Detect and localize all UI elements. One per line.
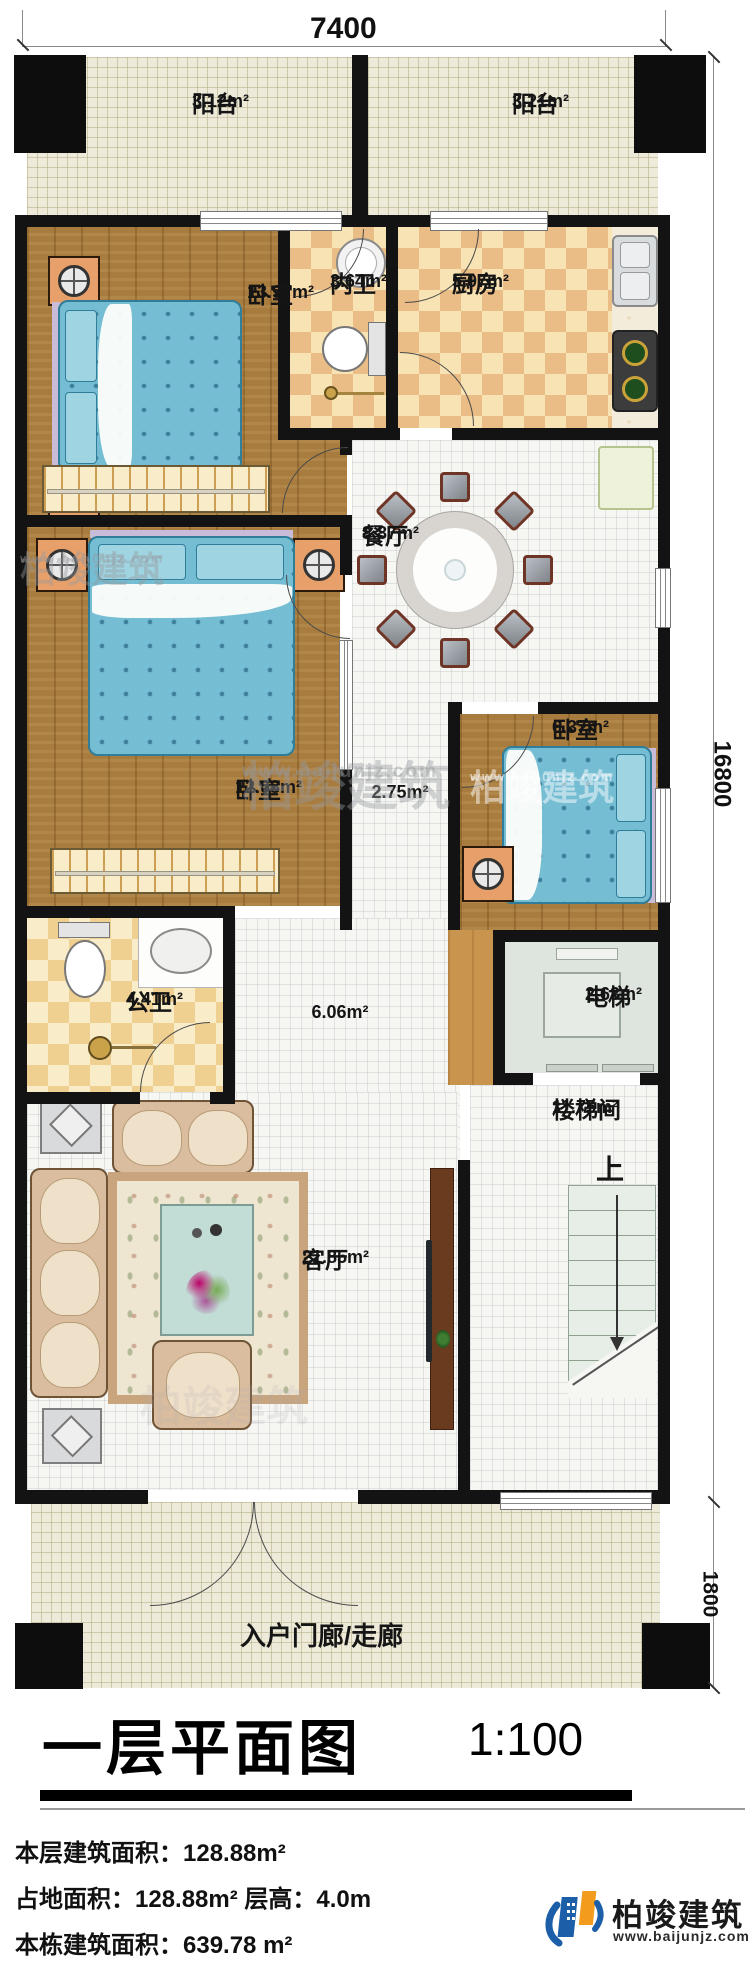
balcony-right-floor xyxy=(368,57,658,215)
dim-tick xyxy=(708,51,721,64)
pillow xyxy=(196,544,284,580)
dining-chair xyxy=(357,555,387,585)
wall xyxy=(15,1490,148,1504)
dining-chair xyxy=(523,555,553,585)
side-table xyxy=(42,1408,102,1464)
window xyxy=(339,640,353,770)
sofa-three-seat xyxy=(30,1168,108,1398)
pillow xyxy=(616,754,646,822)
title-underline-thin xyxy=(40,1808,745,1810)
wall xyxy=(452,428,670,440)
side-table xyxy=(40,1096,102,1154)
stair-arrow-head xyxy=(610,1337,624,1351)
coffee-table xyxy=(160,1204,254,1336)
wall xyxy=(493,930,505,1085)
shower-arm xyxy=(112,1046,156,1049)
info-floor-area: 本层建筑面积：128.88m² xyxy=(15,1833,286,1868)
column xyxy=(14,55,86,153)
column xyxy=(15,1623,83,1689)
sofa-two-seat xyxy=(112,1100,254,1174)
title-underline xyxy=(40,1790,632,1801)
info-building-area: 本栋建筑面积：639.78 m² xyxy=(15,1925,292,1960)
dimension-line-top xyxy=(22,46,666,47)
table-flowers xyxy=(186,1270,230,1314)
wall xyxy=(493,930,658,942)
extension-line xyxy=(22,10,23,46)
sofa-cushion xyxy=(188,1110,248,1166)
column xyxy=(634,55,706,153)
pillow xyxy=(65,310,97,382)
nightstand xyxy=(48,256,100,306)
wall xyxy=(458,1160,470,1490)
wall xyxy=(493,1073,533,1085)
dim-label-bottom-right: 1800 xyxy=(697,1571,721,1618)
nightstand xyxy=(462,846,514,902)
wall xyxy=(15,906,235,918)
window xyxy=(655,788,671,903)
wardrobe xyxy=(50,848,280,894)
brand-logo-icon xyxy=(545,1885,607,1949)
tv-cabinet xyxy=(430,1168,454,1430)
sofa-cushion xyxy=(40,1322,100,1388)
dining-chair xyxy=(440,638,470,668)
scale-label: 1:100 xyxy=(468,1712,583,1766)
nightstand-knob xyxy=(472,858,504,890)
stove-burner xyxy=(622,376,648,402)
wall xyxy=(15,215,27,1504)
elevator-door xyxy=(602,1064,654,1072)
tv-icon xyxy=(426,1240,432,1362)
window xyxy=(430,211,548,231)
bed-sheet xyxy=(98,304,132,468)
window xyxy=(655,568,671,628)
brand-url: www.baijunjz.com xyxy=(613,1928,750,1944)
sofa-cushion xyxy=(40,1250,100,1316)
table-decor xyxy=(192,1228,202,1238)
toilet-tank xyxy=(368,322,386,376)
drain-pipe xyxy=(338,392,384,395)
wall xyxy=(15,215,670,227)
room-label-porch: 入户门廊/走廊 xyxy=(240,1616,403,1653)
elevator-door xyxy=(546,1064,598,1072)
wall xyxy=(278,428,400,440)
dim-label-right: 16800 xyxy=(707,741,735,808)
page-title: 一层平面图 xyxy=(42,1700,362,1787)
side-table-top xyxy=(49,1103,93,1147)
toilet-bowl xyxy=(322,326,368,372)
dim-tick xyxy=(660,39,673,52)
window xyxy=(200,211,342,231)
wall xyxy=(278,215,290,428)
toilet-tank xyxy=(58,922,110,938)
stove-burner xyxy=(622,340,648,366)
wall xyxy=(352,55,368,215)
master-bed xyxy=(58,300,242,472)
refrigerator xyxy=(598,446,654,510)
table-decor xyxy=(210,1224,222,1236)
pillow xyxy=(65,392,97,464)
wall xyxy=(210,1092,235,1104)
sofa-cushion xyxy=(122,1110,182,1166)
dim-tick xyxy=(17,39,30,52)
stair-arrow-line xyxy=(616,1195,618,1337)
wall xyxy=(223,906,235,1104)
pillow xyxy=(616,830,646,898)
sink-basin xyxy=(150,928,212,974)
sofa-cushion xyxy=(40,1178,100,1244)
wall xyxy=(640,1073,658,1085)
elevator-lobby-floor xyxy=(448,930,493,1085)
shower-head-icon xyxy=(88,1036,112,1060)
info-footprint-area: 占地面积：128.88m² 层高：4.0m xyxy=(15,1879,371,1914)
plant-icon xyxy=(436,1330,450,1348)
side-table-top xyxy=(51,1415,93,1457)
dining-chair xyxy=(440,472,470,502)
dining-table-center xyxy=(444,559,466,581)
extension-line xyxy=(665,10,666,46)
wall xyxy=(15,1092,140,1104)
column xyxy=(642,1623,710,1689)
elevator-counterweight xyxy=(556,948,618,960)
wardrobe xyxy=(42,465,270,513)
floor-drain-icon xyxy=(324,386,338,400)
kitchen-sink-basin xyxy=(620,272,650,300)
dim-label-top: 7400 xyxy=(310,12,377,46)
nightstand-knob xyxy=(58,265,90,297)
wall xyxy=(340,515,352,575)
wall xyxy=(538,702,658,714)
floor-plan-page: 7400 16800 1800 阳台3.12m² 阳台3.21m² 卧室13.9… xyxy=(0,0,750,1973)
room-label-hall: 6.06m² xyxy=(311,1002,368,1023)
wall xyxy=(15,515,352,527)
window xyxy=(500,1492,652,1510)
dim-tick xyxy=(708,1496,721,1509)
kitchen-sink-basin xyxy=(620,242,650,268)
stair-direction-label: 上 xyxy=(596,1148,624,1188)
wall xyxy=(386,215,398,428)
toilet-bowl xyxy=(64,940,106,998)
